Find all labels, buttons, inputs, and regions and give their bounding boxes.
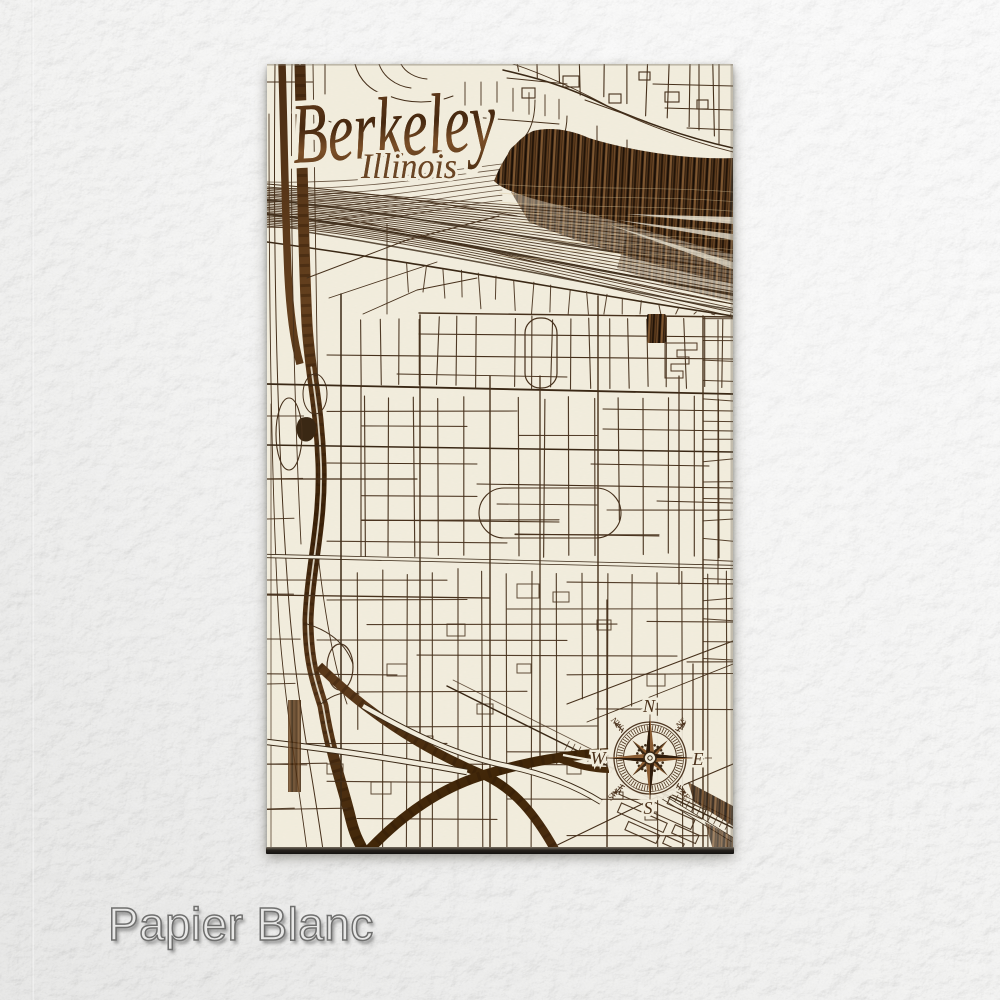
svg-text:E: E [692,749,704,769]
svg-text:W: W [591,748,608,768]
svg-text:S: S [644,798,653,818]
svg-text:Illinois: Illinois [360,146,457,186]
svg-text:N: N [642,696,656,716]
